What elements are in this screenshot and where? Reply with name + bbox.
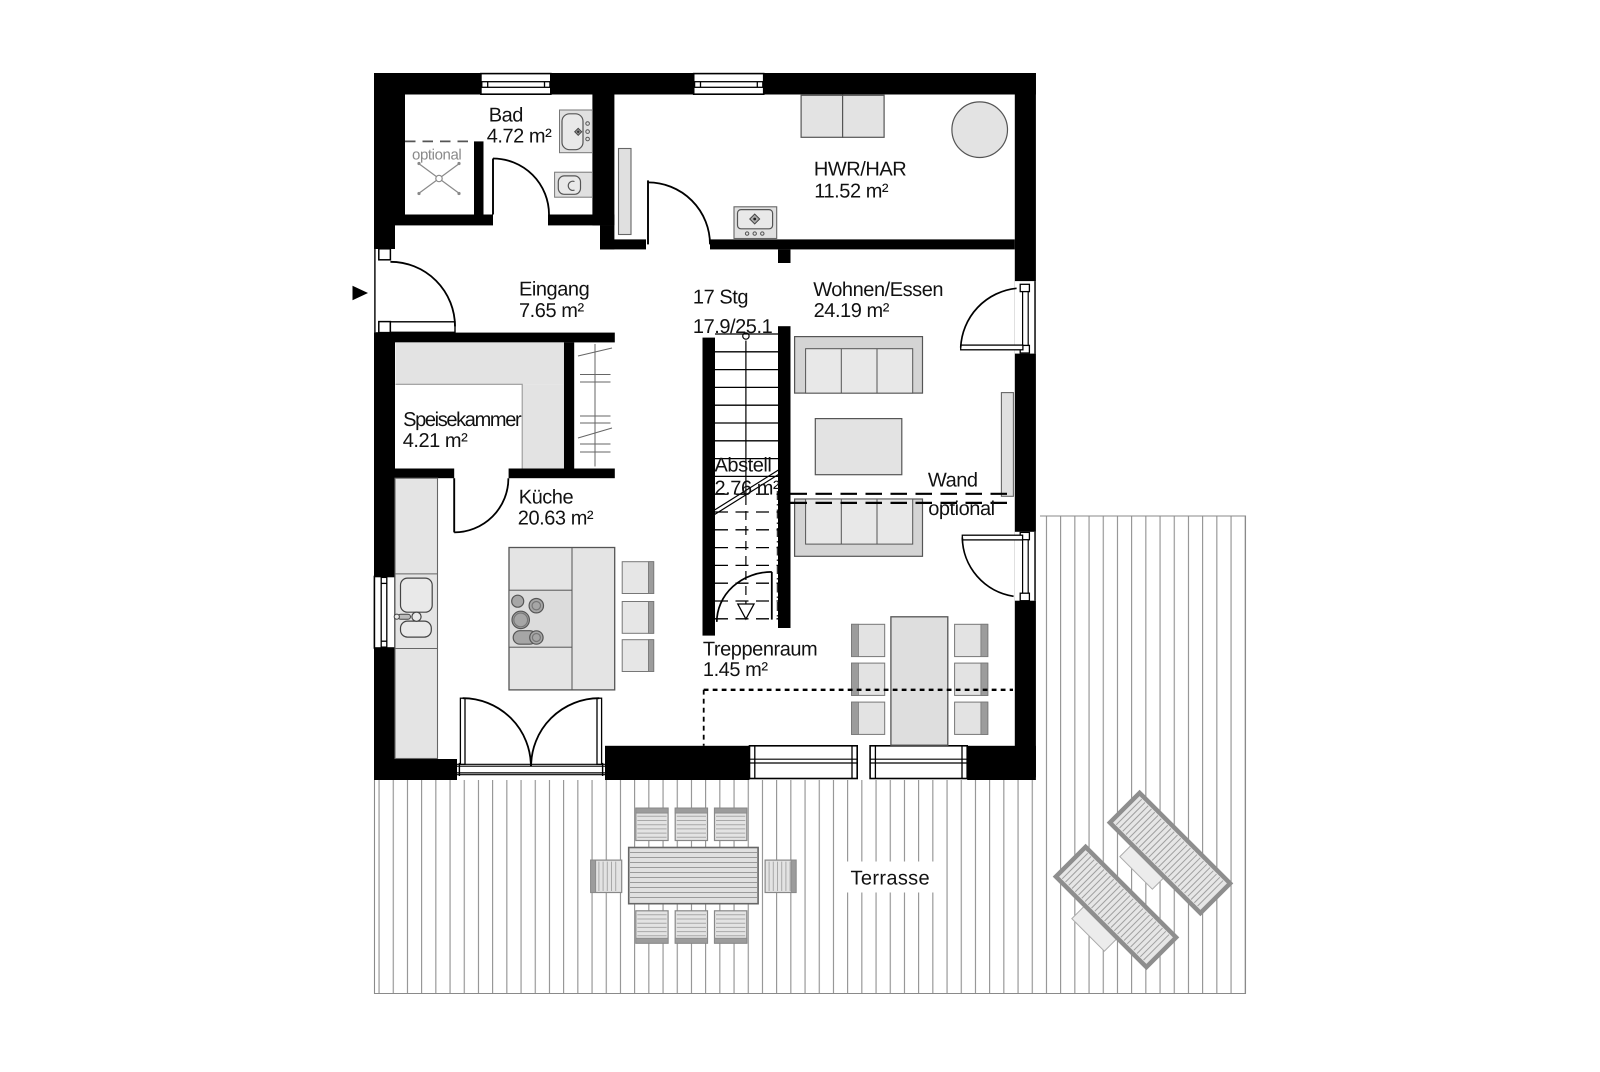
svg-text:20.63 m²: 20.63 m² (518, 507, 594, 529)
svg-text:17 Stg: 17 Stg (693, 287, 748, 309)
svg-text:Bad: Bad (489, 104, 523, 126)
svg-text:24.19 m²: 24.19 m² (814, 300, 890, 322)
svg-text:Abstell: Abstell (715, 455, 772, 477)
svg-text:1.45 m²: 1.45 m² (703, 659, 768, 681)
svg-text:2.76 m²: 2.76 m² (715, 478, 780, 500)
svg-text:4.21 m²: 4.21 m² (403, 430, 468, 452)
svg-text:11.52 m²: 11.52 m² (814, 180, 889, 202)
svg-text:Wohnen/Essen: Wohnen/Essen (813, 279, 943, 301)
svg-text:Küche: Küche (519, 487, 574, 509)
svg-text:optional: optional (928, 498, 994, 520)
svg-text:Treppenraum: Treppenraum (703, 639, 817, 661)
svg-text:7.65 m²: 7.65 m² (519, 300, 584, 322)
svg-text:4.72 m²: 4.72 m² (487, 126, 552, 148)
svg-text:Eingang: Eingang (519, 278, 589, 300)
svg-text:17.9/25.1: 17.9/25.1 (693, 316, 773, 338)
svg-text:Wand: Wand (928, 470, 978, 492)
svg-text:HWR/HAR: HWR/HAR (814, 159, 906, 181)
svg-text:Speisekammer: Speisekammer (403, 409, 522, 431)
svg-text:Terrasse: Terrasse (851, 867, 931, 889)
svg-text:optional: optional (412, 147, 461, 164)
